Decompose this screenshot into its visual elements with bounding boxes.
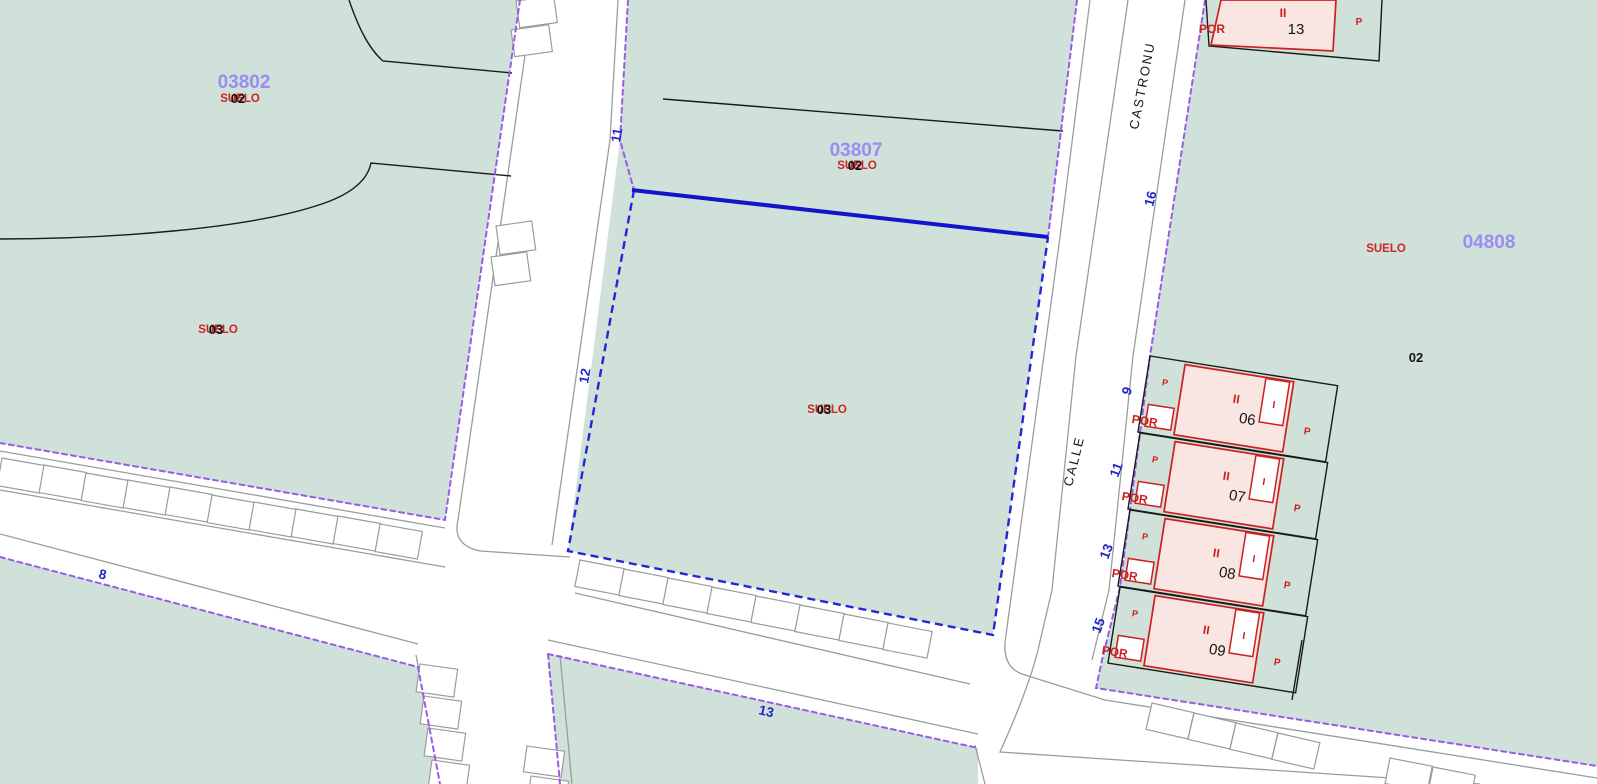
selected-parcel-subparcel-03: 03 [817, 402, 831, 417]
house-08-number: 08 [1218, 564, 1237, 583]
parcel-code-03802: 03802 [218, 72, 271, 93]
parcel-04808-landuse: SUELO [1366, 243, 1406, 255]
house-06-portal-label: POR [1131, 412, 1159, 430]
house-07-number: 07 [1228, 487, 1247, 506]
parcel-bottom-center-region[interactable] [548, 654, 978, 784]
building-13-number: 13 [1288, 21, 1305, 38]
house-09-number: 09 [1208, 641, 1227, 660]
building-13-floors-label: II [1280, 6, 1287, 20]
cadastral-map-viewport[interactable]: POR II 13 P P POR II 06 I P P POR II 07 … [0, 0, 1597, 784]
street-number-11-right: 11 [1107, 460, 1126, 479]
house-08-portal-label: POR [1111, 566, 1139, 584]
house-06-number: 06 [1238, 410, 1257, 429]
street-name-castronu: CASTRONU [1126, 40, 1158, 130]
parcel-03807-subparcel-02: 02 [848, 158, 862, 173]
parcel-03802-subparcel-03: 03 [209, 322, 223, 337]
street-number-8-bottom: 8 [97, 566, 108, 582]
street-number-9-right: 9 [1119, 385, 1136, 397]
map-canvas[interactable]: POR II 13 P P POR II 06 I P P POR II 07 … [0, 0, 1597, 784]
parcel-04808-subparcel-02: 02 [1409, 350, 1423, 365]
street-name-calle: CALLE [1060, 434, 1087, 487]
house-07-portal-label: POR [1121, 489, 1149, 507]
parcel-code-04808: 04808 [1463, 232, 1516, 253]
building-13-courtyard-label: P [1356, 17, 1363, 28]
parcel-bottom-left-region[interactable] [0, 557, 440, 784]
street-number-12-left: 12 [576, 367, 593, 384]
curb-segments-bottom-vertical-street [416, 664, 569, 784]
street-number-15-right: 15 [1089, 615, 1108, 635]
building-13-portal-label: POR [1199, 22, 1225, 36]
parcel-03802-subparcel-02: 02 [231, 91, 245, 106]
